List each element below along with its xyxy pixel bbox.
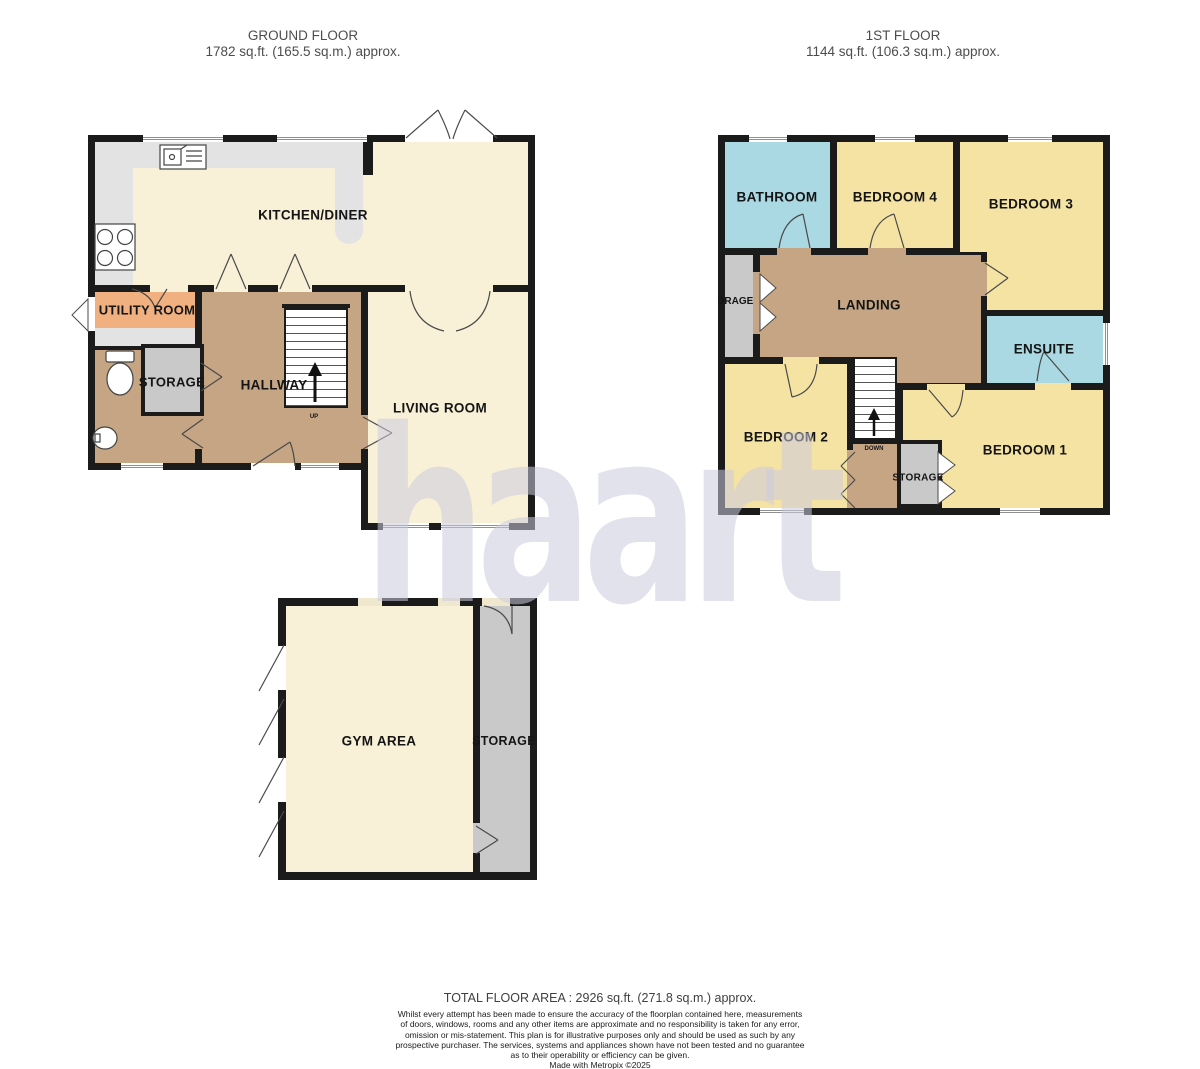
sink-icon [160, 145, 206, 169]
stairs-down-label: DOWN [865, 446, 884, 452]
hob-icon [95, 224, 135, 270]
stairs-down-arrow [868, 408, 880, 436]
door-swing-overlay [0, 0, 1200, 1069]
small-storage-label: STORAGE [892, 473, 943, 484]
gym-top-door-swing [484, 606, 512, 634]
gym-folding-door-lines [259, 645, 284, 857]
wc-door-swing [182, 419, 203, 448]
hall-living-door-swing [363, 417, 392, 449]
french-doors-swing [406, 110, 497, 139]
bedroom2-door-swing [785, 364, 817, 397]
utility-external-door-leaf [72, 299, 88, 331]
bedroom1-label: BEDROOM 1 [983, 443, 1067, 458]
landing-label: LANDING [837, 298, 901, 313]
utility-room-label: UTILITY ROOM [99, 303, 196, 318]
gym-area-label: GYM AREA [342, 734, 417, 749]
bedroom1-door-swing [929, 390, 963, 417]
kitchen-diner-label: KITCHEN/DINER [258, 208, 368, 223]
bathroom-door-swing [779, 214, 810, 248]
hallway-label: HALLWAY [241, 378, 308, 393]
first-floor-storage-label: STORAGE [718, 296, 776, 307]
bedroom4-label: BEDROOM 4 [853, 190, 937, 205]
first-floor-storage-label-clip: STORAGE [718, 296, 776, 310]
kitchen-living-double-door [410, 291, 490, 331]
toilet-icon [106, 351, 134, 395]
basin-icon [93, 427, 117, 449]
bedroom4-door-swing [870, 214, 904, 248]
kitchen-hall-door-1 [216, 254, 246, 289]
front-door-swing [253, 442, 295, 466]
gym-storage-label: STORAGE [472, 734, 536, 748]
stairs-up-label: UP [310, 414, 318, 420]
ensuite-label: ENSUITE [1014, 342, 1075, 357]
bathroom-label: BATHROOM [737, 190, 818, 205]
ground-storage-label: STORAGE [139, 375, 205, 390]
bedroom2-label: BEDROOM 2 [744, 430, 828, 445]
floorplan-page: GROUND FLOOR 1782 sq.ft. (165.5 sq.m.) a… [0, 0, 1200, 1069]
stairs-up-arrow [308, 362, 322, 402]
corridor-door-swing [841, 452, 855, 508]
kitchen-hall-door-2 [280, 254, 310, 289]
bedroom3-door-swing [985, 263, 1008, 295]
bedroom3-label: BEDROOM 3 [989, 197, 1073, 212]
gym-storage-door-swing [476, 826, 498, 854]
living-room-label: LIVING ROOM [393, 401, 487, 416]
